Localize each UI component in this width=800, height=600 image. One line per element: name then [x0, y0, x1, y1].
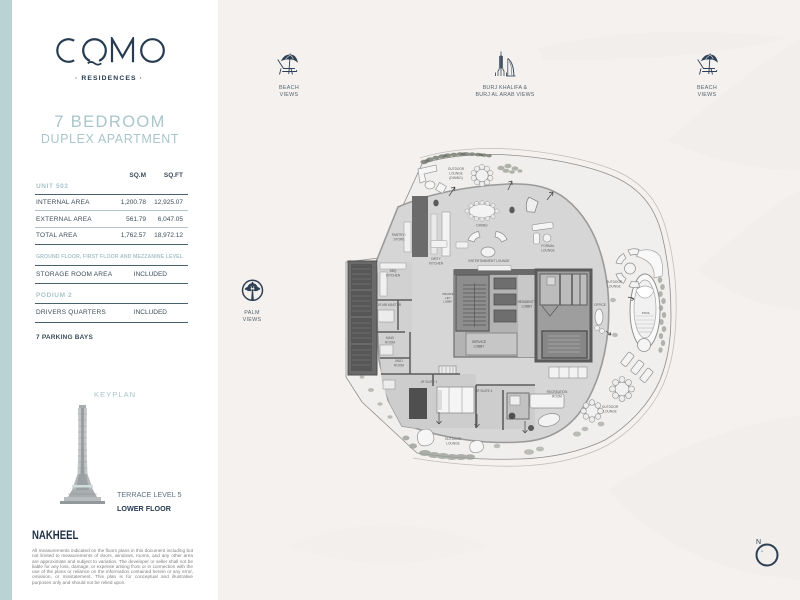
- svg-text:OUTDOOR: OUTDOOR: [602, 405, 619, 409]
- svg-text:STORE: STORE: [394, 238, 405, 242]
- svg-text:LIFT: LIFT: [445, 296, 451, 300]
- svg-text:OUTDOOR: OUTDOOR: [445, 437, 462, 441]
- svg-text:LOBBY: LOBBY: [474, 345, 486, 349]
- svg-text:RESIDENT'S: RESIDENT'S: [518, 300, 537, 304]
- svg-text:LOBBY: LOBBY: [444, 300, 453, 304]
- svg-text:KITCHEN: KITCHEN: [386, 274, 401, 278]
- svg-text:OUTDOOR: OUTDOOR: [606, 280, 623, 284]
- svg-text:PANTRY /: PANTRY /: [392, 233, 406, 237]
- svg-text:MUD: MUD: [395, 359, 403, 363]
- svg-text:JR SUITE 1: JR SUITE 1: [421, 380, 438, 384]
- svg-text:POOL: POOL: [642, 311, 651, 315]
- svg-text:MAID: MAID: [386, 336, 395, 340]
- svg-text:PRIVATE: PRIVATE: [442, 292, 453, 296]
- svg-text:LOUNGE: LOUNGE: [449, 172, 462, 176]
- svg-text:ENTERTAINMENT LOUNGE: ENTERTAINMENT LOUNGE: [468, 259, 509, 263]
- svg-text:(DINING): (DINING): [449, 176, 462, 180]
- svg-text:LOUNGE: LOUNGE: [607, 285, 620, 289]
- svg-text:LOBBY: LOBBY: [522, 305, 534, 309]
- svg-text:OUTDOOR: OUTDOOR: [448, 167, 465, 171]
- svg-text:DINING: DINING: [476, 224, 488, 228]
- svg-text:KITCHEN: KITCHEN: [429, 262, 444, 266]
- svg-text:ROOM: ROOM: [552, 395, 562, 399]
- svg-text:JR SUITE 4: JR SUITE 4: [476, 389, 493, 393]
- svg-text:DIRTY: DIRTY: [431, 257, 441, 261]
- svg-text:RECREATION: RECREATION: [547, 390, 568, 394]
- svg-text:DR MB MASTER: DR MB MASTER: [377, 303, 402, 307]
- svg-text:OFFICE: OFFICE: [594, 303, 606, 307]
- svg-text:LOUNGE: LOUNGE: [603, 410, 616, 414]
- svg-text:LOUNGE: LOUNGE: [541, 249, 554, 253]
- svg-text:ROOM: ROOM: [385, 341, 395, 345]
- svg-text:FORMAL: FORMAL: [541, 244, 555, 248]
- svg-text:ROOM: ROOM: [394, 364, 404, 368]
- svg-text:BBQ: BBQ: [390, 269, 397, 273]
- svg-text:LOUNGE: LOUNGE: [446, 442, 459, 446]
- svg-text:SERVICE: SERVICE: [472, 340, 486, 344]
